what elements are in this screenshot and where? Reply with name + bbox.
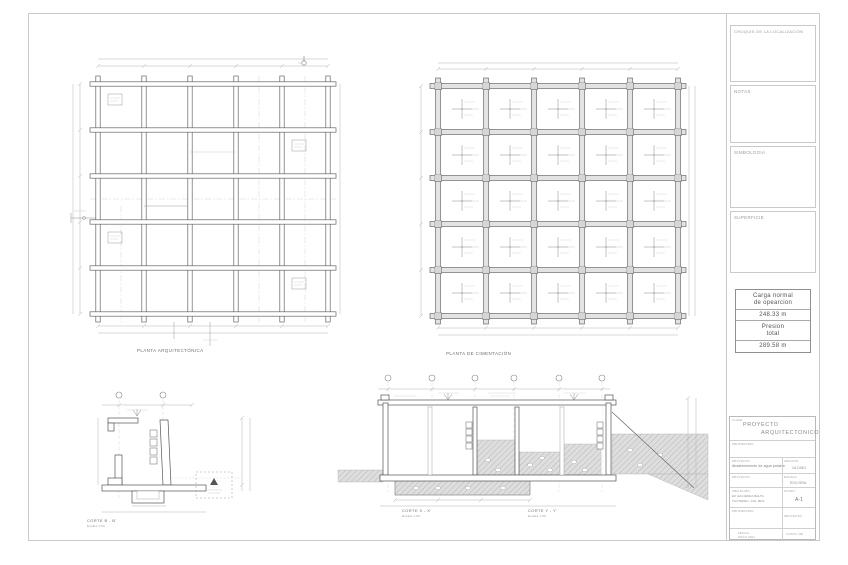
croquis-label: CROQUIS DE LA LOCALIZACIÓN <box>734 29 803 34</box>
presion-line2: total <box>767 331 780 337</box>
titleblock-title-line2: ARQUITECTONICO <box>761 430 819 436</box>
archivo-label: ARCHIVO: <box>784 459 799 463</box>
plano-label: PLANO: <box>784 489 796 493</box>
plan2-column-nodes <box>435 83 686 324</box>
plan1-dimension-lines <box>73 59 340 333</box>
section-xy-vent-symbols <box>438 393 585 400</box>
drawing-sheet: CROQUIS DE LA LOCALIZACIÓN NOTAS SIMBOLO… <box>0 0 848 565</box>
escala-label: ESCALA: <box>784 475 797 479</box>
carga-line2: de opearcion <box>754 300 792 306</box>
foundation-plan-svg <box>408 60 708 344</box>
plan-left-caption: PLANTA ARQUITECTÓNICA <box>137 348 204 353</box>
section-b-vent-symbol <box>127 409 148 416</box>
presion-line1: Presion <box>762 324 784 330</box>
propietario-label: PROPIETARIO: <box>732 442 754 446</box>
section-y-caption: CORTE Y - Y' <box>528 508 557 513</box>
ubicacion-value1: EX HACIENDA BALTA <box>732 494 764 498</box>
section-b-caption: CORTE B - B' <box>87 518 117 523</box>
section-x-caption: CORTE X - X' <box>402 508 432 513</box>
plan1-north-symbol <box>298 56 306 65</box>
section-b-ladder <box>150 430 157 464</box>
proyecto2-label: PROYECTÓ: <box>784 514 803 518</box>
carga-line1: Carga normal <box>753 293 793 299</box>
section-b-svg <box>92 388 267 518</box>
plan-right-caption: PLANTA DE CIMENTACIÓN <box>446 351 511 356</box>
proyecto-label: PROYECTO: <box>732 459 751 463</box>
contenido-label: PROYECTO: <box>732 475 751 479</box>
titleblock-row-contenido: PROYECTO: ESCALA: ESC/GRA <box>730 473 815 487</box>
titleblock-row-ubicacion: UBICACIÓN: EX HACIENDA BALTA TUXTEPEC, C… <box>730 487 815 507</box>
panel-separator-line <box>726 13 727 541</box>
escala-value: ESC/GRA <box>790 481 806 485</box>
load-table-row1-value: 248.33 m <box>736 310 810 321</box>
titleblock-row-fecha: FECHA: MAYO 2021 COTAS: (M) <box>730 528 815 540</box>
cotas-label: COTAS: (M) <box>786 532 803 536</box>
titleblock-row-proyecto: PROYECTO: Abastecimiento de agua potable… <box>730 457 815 473</box>
title-block: CLAVE: PROYECTO ARQUITECTONICO PROPIETAR… <box>729 416 816 540</box>
load-table-row1-label: Carga normal de opearcion <box>736 290 810 310</box>
section-xy-top-dimensions <box>378 387 610 396</box>
architectural-plan-svg <box>70 56 350 348</box>
fecha-value: MAYO 2021 <box>738 535 755 539</box>
clave-label: CLAVE: <box>732 418 743 422</box>
titleblock-title-line1: PROYECTO <box>743 422 779 428</box>
titleblock-row-propietario: PROPIETARIO: <box>730 440 815 457</box>
load-table: Carga normal de opearcion 248.33 m Presi… <box>735 289 811 353</box>
superficie-label: SUPERFICIE <box>734 215 764 220</box>
notas-label: NOTAS <box>734 89 751 94</box>
plano-value: A-1 <box>795 497 803 503</box>
simbologia-label: SIMBOLOGIA <box>734 150 765 155</box>
section-y-scale: Escala 1:50 <box>528 514 546 518</box>
ubicacion-label: UBICACIÓN: <box>732 489 751 493</box>
simbologia-box: SIMBOLOGIA <box>730 146 816 208</box>
proyecto-value: Abastecimiento de agua potable <box>732 464 785 468</box>
superficie-box: SUPERFICIE <box>730 211 816 273</box>
load-table-row2-value: 289.58 m <box>736 341 810 352</box>
titleblock-row-propietario2: PROPIETARIO: PROYECTÓ: <box>730 507 815 528</box>
section-b-axes <box>116 392 166 498</box>
titleblock-column-divider <box>782 457 783 540</box>
notas-box: NOTAS <box>730 85 816 143</box>
load-table-row2-label: Presion total <box>736 321 810 341</box>
propietario2-label: PROPIETARIO: <box>732 509 754 513</box>
section-xy-svg <box>338 370 708 510</box>
archivo-value: 1A DWG <box>792 466 806 470</box>
section-b-scale: Escala 1:50 <box>87 524 105 528</box>
plan1-bottom-leaders <box>174 322 218 346</box>
plan1-annotation-boxes <box>108 94 306 289</box>
croquis-box: CROQUIS DE LA LOCALIZACIÓN <box>730 25 816 82</box>
ubicacion-value2: TUXTEPEC, COL BCS <box>732 499 764 503</box>
section-x-scale: Escala 1:50 <box>402 514 420 518</box>
